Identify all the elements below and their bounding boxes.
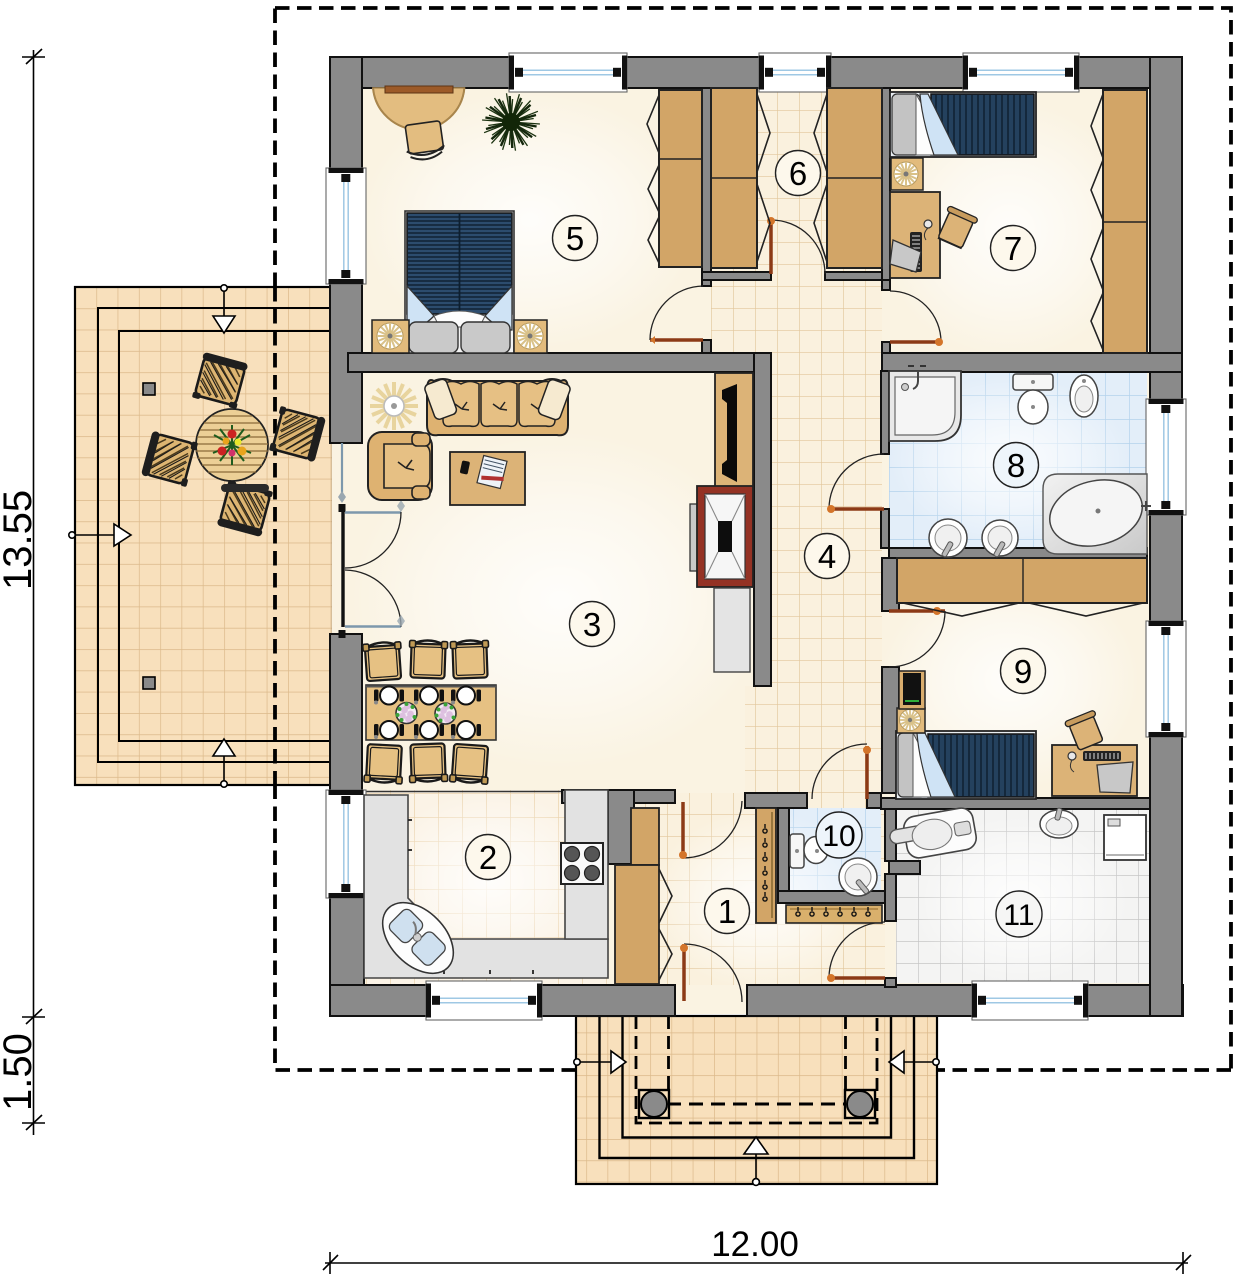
svg-text:9: 9 <box>1014 653 1032 690</box>
svg-text:10: 10 <box>822 820 855 853</box>
svg-text:8: 8 <box>1007 447 1025 484</box>
svg-text:11: 11 <box>1003 899 1034 932</box>
svg-text:4: 4 <box>818 538 836 575</box>
svg-text:7: 7 <box>1004 230 1022 267</box>
svg-text:12.00: 12.00 <box>711 1225 799 1264</box>
svg-text:1: 1 <box>718 893 736 930</box>
svg-text:1.50: 1.50 <box>0 1033 40 1111</box>
svg-text:3: 3 <box>583 606 601 643</box>
svg-text:2: 2 <box>479 839 497 876</box>
svg-text:5: 5 <box>566 220 584 257</box>
svg-text:13.55: 13.55 <box>0 490 40 590</box>
svg-text:6: 6 <box>789 155 807 192</box>
